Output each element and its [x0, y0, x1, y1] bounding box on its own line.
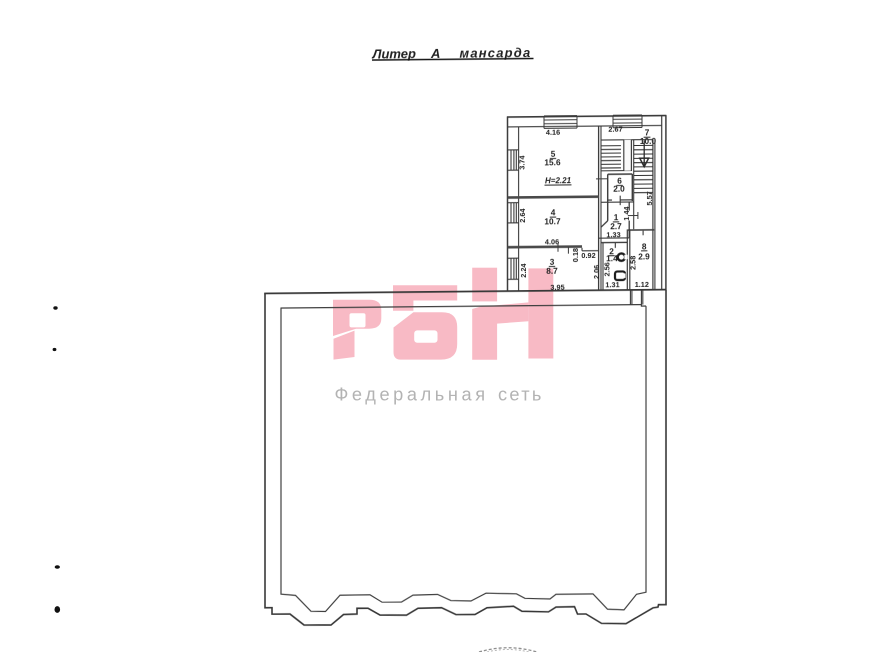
svg-text:15.6: 15.6	[544, 157, 561, 167]
svg-text:0.18: 0.18	[571, 248, 580, 262]
svg-text:1.4: 1.4	[606, 253, 618, 263]
svg-text:8.7: 8.7	[546, 266, 558, 276]
svg-text:10.7: 10.7	[544, 216, 561, 226]
svg-text:2.56: 2.56	[602, 262, 611, 276]
svg-text:0.92: 0.92	[581, 251, 595, 260]
svg-text:2.0: 2.0	[613, 183, 625, 193]
svg-text:сеть: сеть	[498, 385, 544, 405]
svg-text:4.06: 4.06	[545, 237, 559, 246]
svg-text:1.33: 1.33	[606, 230, 620, 239]
svg-text:2.58: 2.58	[628, 256, 637, 270]
svg-text:2.24: 2.24	[519, 263, 528, 278]
svg-text:2.67: 2.67	[608, 125, 622, 134]
svg-text:1.44: 1.44	[622, 206, 631, 221]
svg-text:2.06: 2.06	[592, 265, 601, 279]
svg-text:H=2.21: H=2.21	[545, 176, 572, 185]
svg-text:1.12: 1.12	[635, 280, 649, 289]
svg-text:8: 8	[642, 241, 647, 251]
svg-text:10.0: 10.0	[640, 136, 657, 146]
svg-text:3.74: 3.74	[518, 155, 527, 170]
svg-text:4.16: 4.16	[546, 128, 560, 137]
svg-text:Федеральная: Федеральная	[335, 385, 489, 405]
svg-text:1.31: 1.31	[605, 280, 619, 289]
svg-text:2.9: 2.9	[638, 252, 650, 262]
svg-text:2.64: 2.64	[518, 208, 527, 223]
